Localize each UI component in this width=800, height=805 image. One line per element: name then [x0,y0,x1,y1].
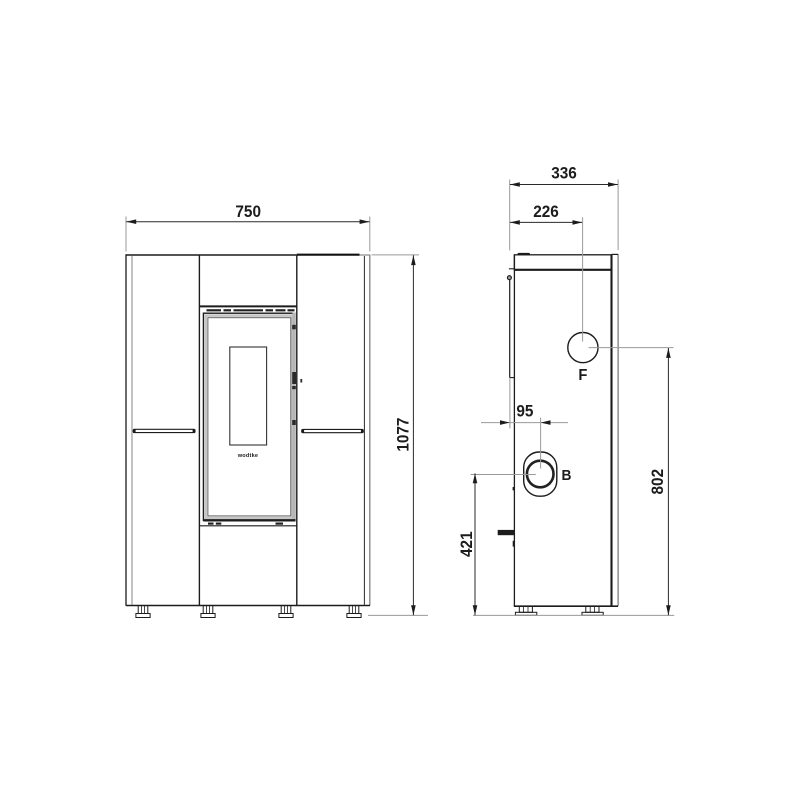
svg-text:226: 226 [533,203,559,221]
svg-text:95: 95 [516,403,533,421]
svg-text:wodtke: wodtke [237,453,258,459]
svg-text:802: 802 [650,469,668,495]
svg-text:B: B [561,466,571,482]
svg-text:1077: 1077 [395,417,413,451]
svg-text:336: 336 [551,165,577,183]
svg-text:421: 421 [459,531,477,557]
svg-text:750: 750 [235,204,261,222]
svg-text:F: F [578,367,587,384]
